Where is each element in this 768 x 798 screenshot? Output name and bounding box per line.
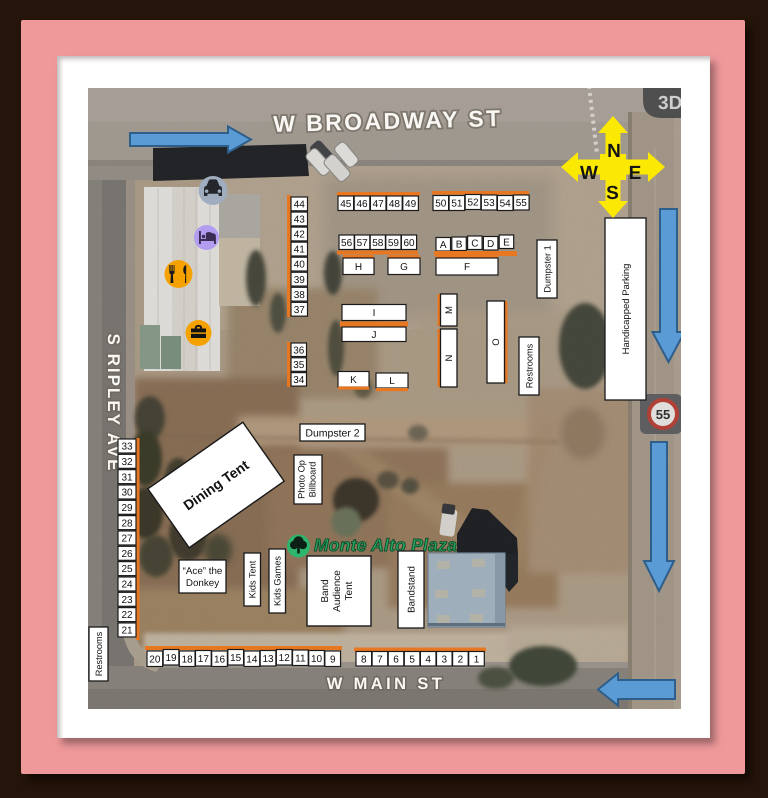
svg-text:Kids Tent: Kids Tent [248, 560, 258, 598]
svg-text:60: 60 [403, 238, 415, 249]
svg-text:Restrooms: Restrooms [524, 343, 534, 388]
svg-text:1: 1 [474, 654, 480, 665]
svg-text:42: 42 [294, 230, 306, 241]
svg-text:14: 14 [246, 654, 258, 665]
svg-text:8: 8 [361, 654, 367, 665]
svg-text:29: 29 [121, 503, 133, 514]
svg-text:N: N [607, 141, 621, 162]
svg-text:24: 24 [121, 580, 133, 591]
svg-text:44: 44 [294, 200, 306, 211]
svg-text:47: 47 [373, 199, 385, 210]
svg-text:H: H [355, 262, 362, 273]
svg-text:43: 43 [294, 215, 306, 226]
svg-text:F: F [464, 262, 470, 273]
svg-text:15: 15 [230, 653, 242, 664]
svg-text:53: 53 [484, 198, 496, 209]
svg-text:36: 36 [293, 345, 305, 356]
svg-text:D: D [487, 239, 494, 250]
svg-text:Billboard: Billboard [308, 462, 318, 498]
svg-text:Kids Games: Kids Games [273, 556, 283, 606]
svg-text:“Ace” the: “Ace” the [183, 566, 223, 577]
svg-text:34: 34 [293, 375, 305, 386]
svg-text:7: 7 [377, 654, 383, 665]
svg-text:55: 55 [516, 198, 528, 209]
svg-text:9: 9 [330, 654, 336, 665]
svg-text:37: 37 [294, 305, 306, 316]
svg-text:48: 48 [389, 199, 401, 210]
svg-text:B: B [456, 239, 463, 250]
svg-text:Dumpster 1: Dumpster 1 [542, 245, 552, 293]
svg-text:2: 2 [458, 654, 464, 665]
svg-text:N: N [444, 354, 455, 361]
svg-text:Bandstand: Bandstand [407, 566, 418, 613]
svg-text:C: C [471, 238, 478, 249]
svg-text:28: 28 [121, 518, 133, 529]
svg-text:K: K [350, 375, 357, 386]
svg-text:16: 16 [214, 654, 226, 665]
svg-text:M: M [444, 306, 455, 314]
svg-text:54: 54 [500, 199, 512, 210]
svg-text:W: W [580, 163, 598, 184]
svg-text:Photo Op: Photo Op [297, 460, 307, 499]
svg-text:21: 21 [121, 626, 133, 637]
svg-text:45: 45 [340, 199, 352, 210]
svg-text:39: 39 [294, 275, 306, 286]
svg-text:12: 12 [279, 653, 291, 664]
svg-text:49: 49 [405, 199, 417, 210]
svg-text:6: 6 [393, 654, 399, 665]
svg-text:31: 31 [121, 472, 133, 483]
svg-text:Audience: Audience [332, 570, 343, 612]
svg-text:Band: Band [320, 579, 331, 602]
svg-text:17: 17 [198, 654, 210, 665]
svg-text:38: 38 [294, 290, 306, 301]
svg-text:32: 32 [121, 457, 133, 468]
svg-text:18: 18 [182, 654, 194, 665]
svg-text:L: L [389, 376, 395, 387]
svg-text:E: E [629, 163, 642, 184]
svg-text:33: 33 [121, 442, 133, 453]
svg-text:22: 22 [121, 610, 133, 621]
svg-text:26: 26 [121, 549, 133, 560]
svg-text:5: 5 [409, 654, 415, 665]
svg-text:40: 40 [294, 260, 306, 271]
svg-text:Monte Alto Plaza: Monte Alto Plaza [314, 535, 457, 555]
svg-text:S: S [606, 183, 619, 204]
svg-text:51: 51 [451, 199, 463, 210]
svg-text:19: 19 [165, 653, 177, 664]
svg-text:G: G [400, 262, 408, 273]
svg-text:58: 58 [372, 238, 384, 249]
svg-text:52: 52 [467, 198, 479, 209]
svg-text:23: 23 [121, 595, 133, 606]
svg-text:Dumpster 2: Dumpster 2 [305, 428, 359, 440]
svg-text:11: 11 [295, 653, 306, 664]
svg-text:10: 10 [311, 654, 323, 665]
svg-text:57: 57 [357, 238, 369, 249]
svg-text:50: 50 [435, 199, 447, 210]
svg-text:25: 25 [121, 564, 133, 575]
svg-text:13: 13 [262, 654, 274, 665]
svg-text:Tent: Tent [344, 581, 355, 600]
svg-text:46: 46 [356, 199, 368, 210]
svg-text:4: 4 [425, 654, 431, 665]
svg-text:A: A [440, 240, 447, 251]
svg-text:E: E [503, 237, 510, 248]
svg-text:O: O [491, 338, 502, 345]
svg-text:35: 35 [293, 360, 305, 371]
svg-text:27: 27 [121, 534, 133, 545]
svg-text:Donkey: Donkey [186, 578, 219, 589]
svg-text:59: 59 [388, 238, 400, 249]
svg-text:41: 41 [294, 245, 306, 256]
svg-text:W MAIN ST: W MAIN ST [327, 675, 446, 693]
svg-text:I: I [373, 308, 376, 319]
svg-text:J: J [372, 330, 377, 341]
svg-text:Restrooms: Restrooms [94, 631, 104, 676]
svg-text:20: 20 [149, 654, 161, 665]
svg-text:56: 56 [341, 238, 353, 249]
svg-text:30: 30 [121, 488, 133, 499]
svg-text:Handicapped Parking: Handicapped Parking [621, 264, 632, 355]
svg-text:3: 3 [442, 654, 448, 665]
